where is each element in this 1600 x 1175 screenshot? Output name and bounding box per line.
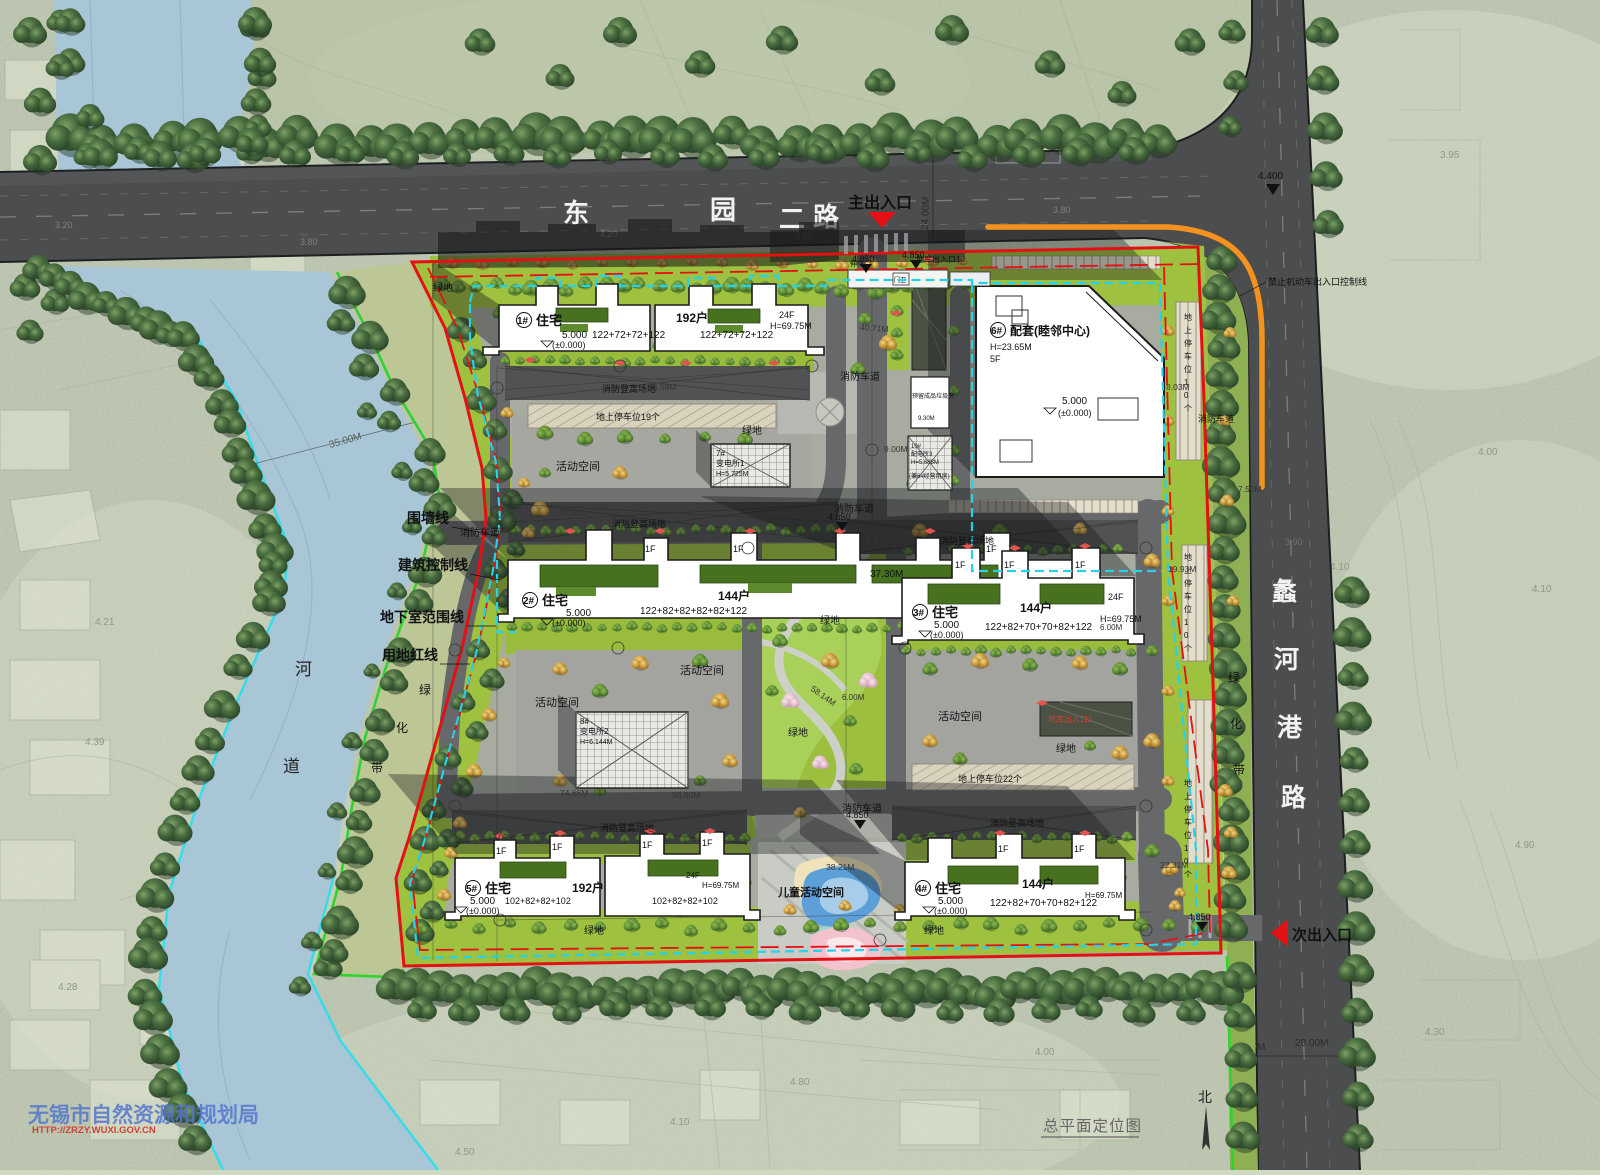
svg-text:4.21: 4.21 bbox=[95, 617, 115, 628]
svg-text:4.28: 4.28 bbox=[58, 982, 78, 993]
svg-text:北: 北 bbox=[1198, 1089, 1212, 1105]
svg-text:活动空间: 活动空间 bbox=[535, 695, 579, 709]
svg-text:102+82+82+102: 102+82+82+102 bbox=[652, 896, 718, 906]
svg-text:消防登高场地: 消防登高场地 bbox=[990, 817, 1044, 828]
svg-text:化: 化 bbox=[1230, 717, 1242, 731]
svg-text:3.20: 3.20 bbox=[55, 220, 73, 230]
svg-text:6.00M: 6.00M bbox=[1100, 623, 1123, 632]
svg-text:192户: 192户 bbox=[572, 880, 604, 895]
svg-text:6#: 6# bbox=[991, 326, 1003, 337]
svg-text:1: 1 bbox=[1184, 618, 1189, 627]
svg-text:144户: 144户 bbox=[1020, 600, 1052, 615]
svg-text:河: 河 bbox=[295, 660, 312, 679]
svg-text:绿地: 绿地 bbox=[1056, 742, 1076, 755]
svg-text:次出入口: 次出入口 bbox=[1292, 926, 1352, 944]
svg-text:港: 港 bbox=[1277, 713, 1303, 742]
svg-text:1F: 1F bbox=[955, 560, 966, 570]
svg-text:(±0.000): (±0.000) bbox=[930, 630, 963, 640]
svg-text:车: 车 bbox=[1184, 351, 1192, 361]
svg-text:消防车道: 消防车道 bbox=[460, 526, 500, 539]
svg-text:停: 停 bbox=[1184, 338, 1192, 348]
svg-text:住宅: 住宅 bbox=[536, 313, 562, 328]
svg-text:带: 带 bbox=[371, 761, 383, 775]
svg-text:4.850: 4.850 bbox=[1188, 912, 1211, 922]
svg-text:园: 园 bbox=[710, 195, 736, 225]
svg-text:144户: 144户 bbox=[1022, 876, 1054, 891]
svg-text:37.30M: 37.30M bbox=[870, 569, 903, 580]
svg-text:绿地: 绿地 bbox=[584, 924, 604, 937]
svg-text:地下室范围线: 地下室范围线 bbox=[380, 609, 464, 625]
svg-text:24F: 24F bbox=[1108, 592, 1124, 602]
svg-text:河: 河 bbox=[1274, 646, 1299, 674]
svg-text:配电所3: 配电所3 bbox=[911, 450, 933, 458]
svg-text:4.850: 4.850 bbox=[846, 810, 869, 820]
svg-text:1: 1 bbox=[1184, 844, 1189, 853]
svg-text:4.30: 4.30 bbox=[1425, 1027, 1445, 1038]
svg-text:建筑控制线: 建筑控制线 bbox=[398, 557, 468, 573]
svg-text:地: 地 bbox=[1184, 552, 1192, 562]
svg-text:道: 道 bbox=[283, 757, 300, 776]
svg-text:1F: 1F bbox=[1074, 844, 1085, 854]
svg-text:地库出入口2: 地库出入口2 bbox=[1048, 714, 1093, 724]
svg-text:24F: 24F bbox=[686, 871, 700, 880]
svg-text:活动空间: 活动空间 bbox=[680, 663, 724, 677]
svg-text:消防车道: 消防车道 bbox=[1198, 413, 1234, 424]
svg-text:(±0.000): (±0.000) bbox=[1058, 408, 1091, 418]
svg-text:地上停车位19个: 地上停车位19个 bbox=[596, 411, 660, 422]
svg-text:位: 位 bbox=[1184, 364, 1192, 374]
svg-text:56.60M: 56.60M bbox=[672, 790, 700, 800]
svg-text:0: 0 bbox=[1184, 391, 1189, 400]
svg-text:4.10: 4.10 bbox=[1532, 584, 1552, 595]
svg-text:围墙线: 围墙线 bbox=[407, 510, 449, 526]
svg-text:H=5.725M: H=5.725M bbox=[716, 471, 749, 478]
svg-text:3.95: 3.95 bbox=[1440, 150, 1460, 161]
svg-text:1F: 1F bbox=[998, 844, 1009, 854]
svg-text:活动空间: 活动空间 bbox=[556, 459, 600, 473]
svg-text:住宅: 住宅 bbox=[485, 881, 511, 896]
svg-text:绿地: 绿地 bbox=[788, 726, 808, 739]
svg-text:1F: 1F bbox=[642, 840, 653, 850]
svg-text:绿地: 绿地 bbox=[433, 281, 453, 294]
svg-text:122+82+70+70+82+122: 122+82+70+70+82+122 bbox=[985, 622, 1092, 633]
svg-text:2.00M: 2.00M bbox=[492, 833, 515, 842]
svg-text:3.80: 3.80 bbox=[1053, 205, 1071, 215]
svg-text:东: 东 bbox=[563, 198, 589, 228]
svg-text:74.66M: 74.66M bbox=[560, 788, 588, 798]
svg-text:1F: 1F bbox=[1075, 560, 1086, 570]
svg-text:24.00M: 24.00M bbox=[920, 196, 932, 230]
svg-text:5F: 5F bbox=[990, 354, 1001, 364]
svg-text:4.400: 4.400 bbox=[1258, 171, 1283, 182]
svg-text:(±0.000): (±0.000) bbox=[466, 906, 499, 916]
svg-text:6.00M: 6.00M bbox=[842, 693, 865, 702]
svg-text:1F: 1F bbox=[702, 838, 713, 848]
svg-text:8#: 8# bbox=[580, 717, 589, 726]
svg-text:地上停车位22个: 地上停车位22个 bbox=[958, 773, 1022, 784]
svg-text:122+82+82+82+82+122: 122+82+82+82+82+122 bbox=[640, 606, 747, 617]
svg-text:122+72+72+122: 122+72+72+122 bbox=[700, 330, 774, 341]
svg-text:4.39: 4.39 bbox=[85, 737, 105, 748]
svg-text:消防登高场地: 消防登高场地 bbox=[940, 535, 994, 546]
svg-text:4.00: 4.00 bbox=[1478, 447, 1498, 458]
svg-text:(±0.000): (±0.000) bbox=[552, 618, 585, 628]
svg-text:用地红线: 用地红线 bbox=[382, 647, 438, 663]
svg-text:4.850: 4.850 bbox=[852, 254, 875, 264]
svg-text:HTTP://ZRZY.WUXI.GOV.CN: HTTP://ZRZY.WUXI.GOV.CN bbox=[32, 1125, 156, 1136]
svg-text:(兼6#经营用房): (兼6#经营用房) bbox=[909, 472, 950, 480]
svg-text:4.10: 4.10 bbox=[670, 1117, 690, 1128]
svg-text:1F: 1F bbox=[552, 842, 563, 852]
svg-text:1F: 1F bbox=[1004, 560, 1015, 570]
svg-text:化: 化 bbox=[396, 721, 408, 735]
svg-text:22.31M: 22.31M bbox=[1160, 860, 1188, 870]
svg-text:H=69.75M: H=69.75M bbox=[1085, 891, 1122, 900]
svg-text:蠡: 蠡 bbox=[1272, 577, 1297, 606]
svg-text:预留成品垃圾房: 预留成品垃圾房 bbox=[912, 392, 954, 400]
svg-text:绿地: 绿地 bbox=[742, 424, 762, 437]
svg-text:76.59M: 76.59M bbox=[648, 382, 676, 392]
svg-text:位: 位 bbox=[1184, 604, 1192, 614]
svg-text:2#: 2# bbox=[523, 596, 535, 607]
svg-text:5.000: 5.000 bbox=[1062, 396, 1087, 407]
svg-text:住宅: 住宅 bbox=[932, 605, 958, 620]
svg-text:4.80: 4.80 bbox=[790, 1077, 810, 1088]
svg-text:地库出入口1: 地库出入口1 bbox=[916, 254, 961, 264]
svg-text:192户: 192户 bbox=[676, 310, 708, 325]
svg-text:4#: 4# bbox=[916, 884, 928, 895]
svg-text:3.90: 3.90 bbox=[1285, 537, 1303, 547]
svg-text:144户: 144户 bbox=[718, 588, 750, 603]
svg-text:配套(睦邻中心): 配套(睦邻中心) bbox=[1010, 323, 1090, 338]
svg-text:带: 带 bbox=[1233, 763, 1245, 777]
svg-text:绿: 绿 bbox=[419, 682, 431, 697]
svg-text:(±0.000): (±0.000) bbox=[552, 340, 585, 350]
svg-text:主出入口: 主出入口 bbox=[848, 193, 912, 212]
svg-text:H=6.144M: H=6.144M bbox=[580, 739, 613, 746]
svg-text:9.30M: 9.30M bbox=[918, 416, 935, 422]
svg-text:10#: 10# bbox=[911, 444, 922, 450]
svg-text:个: 个 bbox=[1184, 870, 1192, 879]
svg-text:上: 上 bbox=[1184, 792, 1192, 801]
svg-text:H=23.65M: H=23.65M bbox=[990, 342, 1032, 352]
svg-text:122+82+70+70+82+122: 122+82+70+70+82+122 bbox=[990, 898, 1097, 909]
svg-text:122+72+72+122: 122+72+72+122 bbox=[592, 330, 666, 341]
svg-text:H=5.688M: H=5.688M bbox=[911, 460, 939, 466]
svg-text:位: 位 bbox=[1184, 830, 1192, 840]
svg-text:(±0.000): (±0.000) bbox=[934, 906, 967, 916]
svg-text:绿地: 绿地 bbox=[820, 614, 840, 627]
svg-text:绿: 绿 bbox=[1228, 670, 1240, 685]
svg-text:19.93M: 19.93M bbox=[1168, 564, 1196, 574]
svg-text:车: 车 bbox=[1184, 591, 1192, 601]
svg-text:57.40M: 57.40M bbox=[560, 508, 588, 518]
svg-text:H=69.75M: H=69.75M bbox=[702, 881, 739, 890]
svg-text:地: 地 bbox=[1184, 312, 1192, 322]
svg-text:8.03M: 8.03M bbox=[1166, 382, 1190, 392]
svg-text:个: 个 bbox=[1184, 644, 1192, 653]
svg-text:变电所1: 变电所1 bbox=[716, 458, 745, 468]
svg-text:1#: 1# bbox=[517, 316, 529, 327]
svg-text:住宅: 住宅 bbox=[542, 593, 568, 608]
svg-text:停: 停 bbox=[1184, 804, 1192, 814]
svg-text:儿童活动空间: 儿童活动空间 bbox=[777, 885, 844, 899]
svg-text:绿地: 绿地 bbox=[924, 924, 944, 937]
svg-text:1F: 1F bbox=[496, 846, 507, 856]
svg-text:40.71M: 40.71M bbox=[860, 322, 889, 334]
svg-text:消防登高场地: 消防登高场地 bbox=[612, 518, 666, 529]
svg-text:4.90: 4.90 bbox=[1515, 840, 1535, 851]
svg-text:变电所2: 变电所2 bbox=[580, 726, 609, 736]
svg-text:24F: 24F bbox=[779, 310, 795, 320]
svg-text:无锡市自然资源和规划局: 无锡市自然资源和规划局 bbox=[28, 1103, 259, 1127]
svg-text:地: 地 bbox=[1184, 778, 1192, 788]
svg-text:H=69.75M: H=69.75M bbox=[770, 321, 812, 331]
svg-text:停: 停 bbox=[1184, 578, 1192, 588]
svg-text:上: 上 bbox=[1184, 326, 1192, 335]
svg-text:3#: 3# bbox=[913, 608, 925, 619]
svg-text:路: 路 bbox=[1281, 784, 1307, 812]
svg-text:总平面定位图: 总平面定位图 bbox=[1043, 1117, 1142, 1135]
svg-text:0: 0 bbox=[1184, 631, 1189, 640]
svg-text:1F: 1F bbox=[645, 544, 656, 554]
svg-text:个: 个 bbox=[1184, 404, 1192, 413]
svg-text:禁止机动车出入口控制线: 禁止机动车出入口控制线 bbox=[1268, 276, 1367, 287]
svg-text:消防登高场地: 消防登高场地 bbox=[600, 822, 654, 833]
svg-text:车: 车 bbox=[1184, 817, 1192, 827]
svg-text:9.00M: 9.00M bbox=[884, 444, 908, 454]
svg-text:20.00M: 20.00M bbox=[1295, 1038, 1328, 1049]
svg-text:消防车道: 消防车道 bbox=[840, 370, 880, 383]
svg-text:7.50M: 7.50M bbox=[1238, 484, 1262, 494]
svg-text:活动空间: 活动空间 bbox=[938, 709, 982, 723]
svg-text:102+82+82+102: 102+82+82+102 bbox=[505, 896, 571, 906]
svg-text:38.21M: 38.21M bbox=[826, 862, 854, 872]
svg-text:4.50: 4.50 bbox=[455, 1147, 475, 1158]
svg-text:住宅: 住宅 bbox=[935, 881, 961, 896]
svg-text:4.10: 4.10 bbox=[1330, 562, 1350, 573]
svg-text:5#: 5# bbox=[466, 884, 478, 895]
svg-text:3.80: 3.80 bbox=[300, 237, 318, 247]
svg-text:4.00: 4.00 bbox=[1035, 1047, 1055, 1058]
svg-text:7#: 7# bbox=[716, 449, 725, 458]
